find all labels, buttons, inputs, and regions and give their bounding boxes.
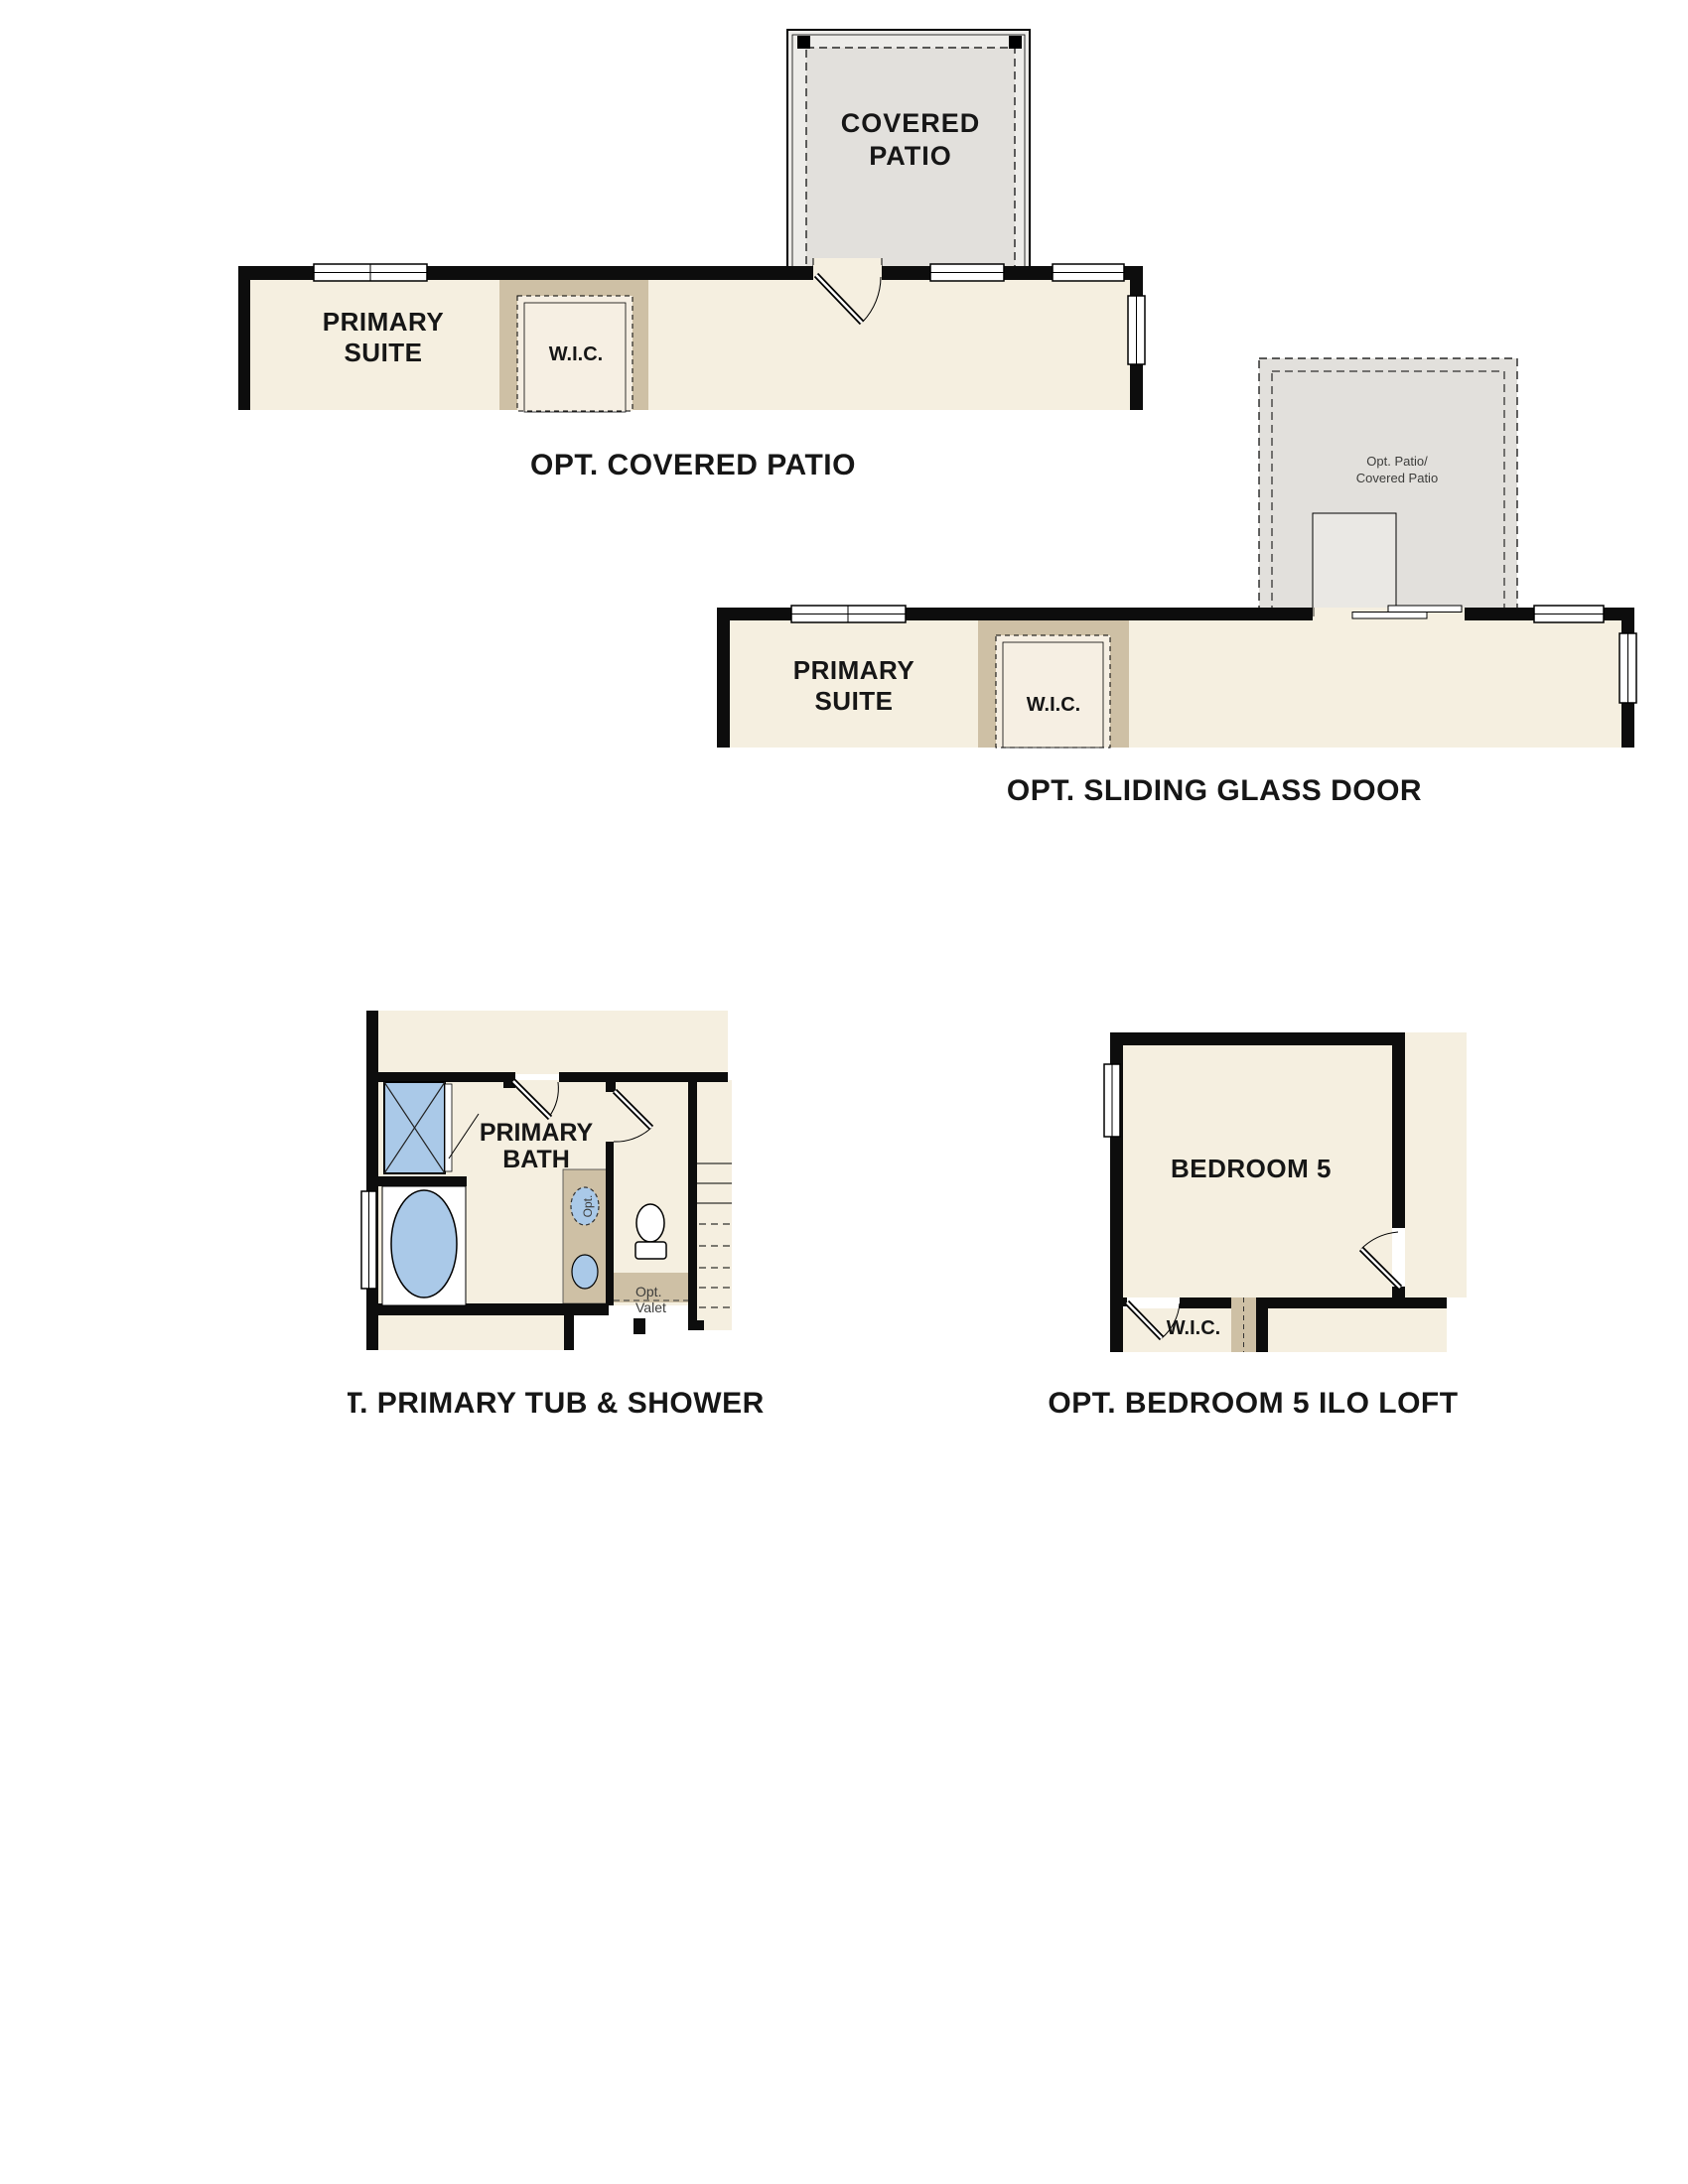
bedroom5-label: BEDROOM 5	[1171, 1154, 1332, 1183]
shower-door	[445, 1084, 452, 1171]
opt-patio-note-line1: Opt. Patio/	[1366, 454, 1428, 469]
toilet	[635, 1204, 666, 1259]
sliding-glass-door	[1313, 606, 1465, 620]
window	[314, 264, 427, 281]
wic-label: W.I.C.	[549, 343, 603, 365]
primary-suite-label-line2: SUITE	[344, 338, 422, 367]
caption-primary-tub-shower: OPT. PRIMARY TUB & SHOWER	[348, 1387, 765, 1420]
shower	[384, 1082, 452, 1173]
primary-suite-label-line1: PRIMARY	[793, 655, 914, 685]
window	[1053, 264, 1124, 281]
wic-label: W.I.C.	[1027, 694, 1080, 716]
window-side	[1104, 1064, 1120, 1137]
window	[930, 264, 1004, 281]
wic-room	[996, 635, 1110, 748]
plan-sliding-glass-door: Opt. Patio/ Covered Patio PRIMARY SUITE …	[695, 347, 1668, 814]
patio-post-left	[797, 36, 810, 49]
plan-primary-tub-shower: Opt. PRIMARY BATH Opt. Valet OPT. PRIMAR…	[348, 1003, 765, 1430]
caption-sliding-glass-door: OPT. SLIDING GLASS DOOR	[1007, 774, 1422, 807]
stair-fill	[697, 1080, 732, 1330]
cased-opening	[1231, 1297, 1256, 1352]
opt-patio-note-line2: Covered Patio	[1356, 471, 1438, 485]
primary-suite-label-line1: PRIMARY	[323, 307, 444, 337]
tub	[382, 1186, 466, 1305]
patio-label-line2: PATIO	[869, 141, 952, 171]
window-side	[1619, 633, 1636, 703]
plan-bedroom5: BEDROOM 5 W.I.C. OPT. BEDROOM 5 ILO LOFT	[1033, 1013, 1479, 1430]
primary-bath-label-line1: PRIMARY	[480, 1119, 594, 1147]
primary-suite-label-line2: SUITE	[814, 686, 893, 716]
patio-pad	[1313, 513, 1396, 609]
patio-label-line1: COVERED	[841, 108, 981, 138]
primary-bath-label-line2: BATH	[502, 1146, 570, 1173]
valet-label-line2: Valet	[635, 1299, 666, 1315]
opt-sink-label: Opt.	[581, 1195, 595, 1218]
caption-bedroom5-ilo-loft: OPT. BEDROOM 5 ILO LOFT	[1048, 1387, 1458, 1420]
window	[791, 606, 906, 622]
sink	[572, 1255, 598, 1289]
floor-plan-sheet: COVERED PATIO PRIMARY SUITE W.I.C. OPT. …	[0, 0, 1688, 2184]
window-side	[361, 1191, 376, 1289]
wic-label: W.I.C.	[1167, 1317, 1220, 1339]
patio-post-right	[1009, 36, 1022, 49]
window	[1534, 606, 1604, 622]
valet-label-line1: Opt.	[635, 1284, 661, 1299]
